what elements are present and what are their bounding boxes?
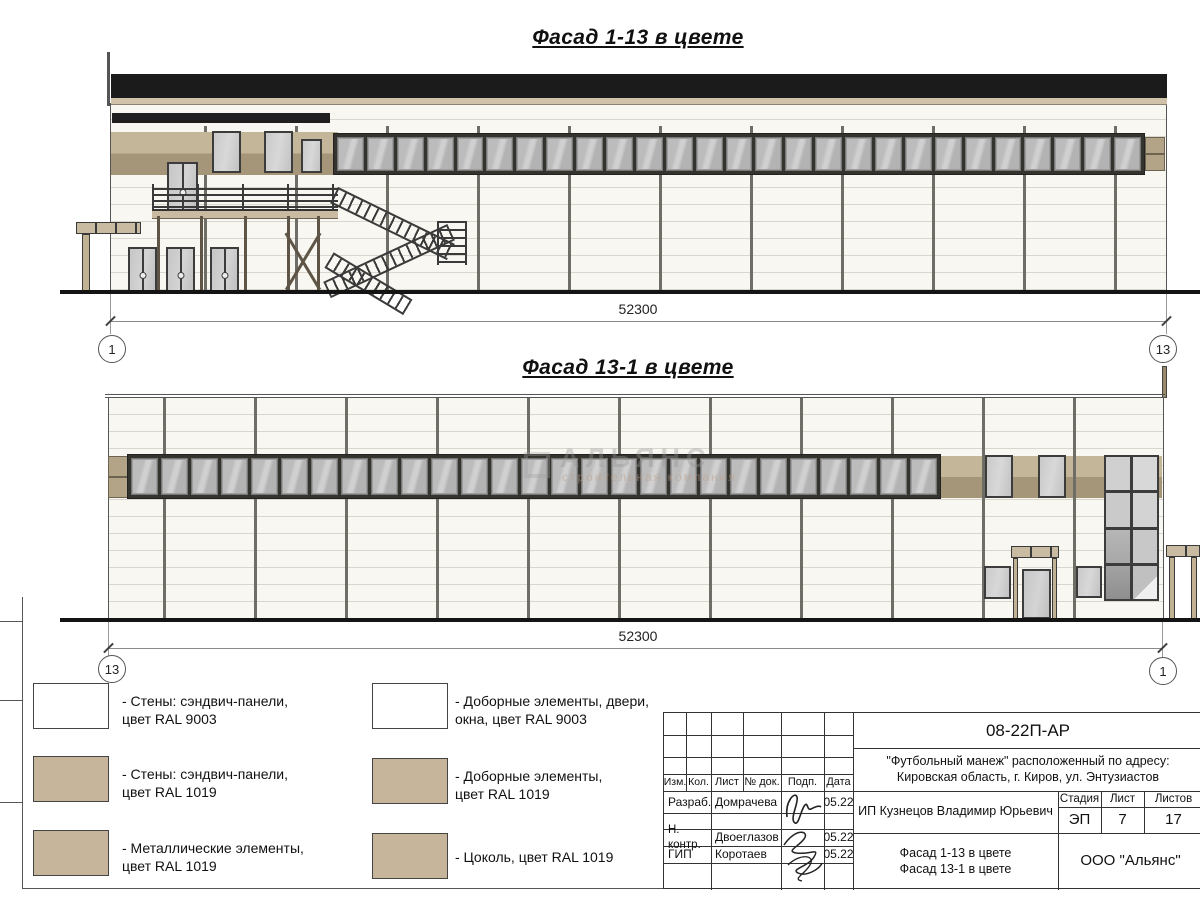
legend-label: - Стены: сэндвич-панели, цвет RAL 1019 xyxy=(122,765,288,801)
structural-grid-line xyxy=(163,398,166,620)
mast xyxy=(107,52,110,106)
tb-date: 05.22 xyxy=(824,791,853,813)
balcony-post xyxy=(200,216,203,291)
signature-nkontr-gip xyxy=(776,825,828,885)
drawing-sheet: Фасад 1-13 в цвете xyxy=(0,0,1200,900)
glazing-pane xyxy=(1133,457,1157,490)
window-pane xyxy=(337,137,364,171)
tb-name-dvoeglazov: Двоеглазов xyxy=(711,829,781,846)
window-pane xyxy=(785,137,812,171)
facade1-dim-text: 52300 xyxy=(458,301,818,317)
axis-bubble-1: 1 xyxy=(1149,657,1177,685)
tb-sheets-label: Листов xyxy=(1144,791,1200,807)
structural-grid-line xyxy=(436,398,439,620)
window-pane xyxy=(965,137,992,171)
window-pane xyxy=(491,458,518,495)
right-side-canopy-post xyxy=(1169,557,1175,620)
window-pane xyxy=(251,458,278,495)
facade2-dim-text: 52300 xyxy=(458,628,818,644)
facade2-dim-line xyxy=(108,648,1163,649)
facade2-ground-line xyxy=(60,618,1200,622)
tb-company: ООО "Альянс" xyxy=(1058,833,1200,890)
frame-tick xyxy=(0,802,22,803)
glazing-pane xyxy=(1133,530,1157,563)
tb-project-address: "Футбольный манеж" расположенный по адре… xyxy=(853,748,1200,791)
structural-grid-line xyxy=(800,398,803,620)
tb-name-domracheva: Домрачева xyxy=(711,791,781,813)
tb-col-izm: Изм. xyxy=(664,774,686,791)
window-pane xyxy=(486,137,513,171)
window-pane xyxy=(311,458,338,495)
structural-grid-line xyxy=(709,398,712,620)
window-pane xyxy=(850,458,877,495)
structural-grid-line xyxy=(527,398,530,620)
window-pane xyxy=(546,137,573,171)
window-pane xyxy=(221,458,248,495)
frame-tick xyxy=(0,621,22,622)
window-pane xyxy=(371,458,398,495)
ground-door-3 xyxy=(210,247,239,292)
window-pane xyxy=(935,137,962,171)
structural-grid-line xyxy=(891,398,894,620)
tb-col-ndok: № док. xyxy=(743,774,781,791)
legend-swatch xyxy=(372,683,448,729)
glazing-pane xyxy=(1106,493,1130,526)
facade1-dim-line xyxy=(110,321,1167,322)
frame-tick xyxy=(0,700,22,701)
tb-drawing-titles: Фасад 1-13 в цвете Фасад 13-1 в цвете xyxy=(853,833,1058,890)
window-pane xyxy=(576,137,603,171)
upper-window-2 xyxy=(264,131,293,173)
tb-col-kol: Кол. xyxy=(686,774,711,791)
window-pane xyxy=(367,137,394,171)
right-side-canopy-post xyxy=(1191,557,1197,620)
tb-client: ИП Кузнецов Владимир Юрьевич xyxy=(853,791,1058,833)
tb-stage-label: Стадия xyxy=(1058,791,1101,807)
window-pane xyxy=(726,137,753,171)
legend-label: - Цоколь, цвет RAL 1019 xyxy=(455,848,613,866)
window-pane xyxy=(760,458,787,495)
right-side-canopy xyxy=(1166,545,1200,557)
glazing-stack xyxy=(1104,455,1159,601)
window-pane xyxy=(457,137,484,171)
ground-door-2 xyxy=(166,247,195,292)
dim-leader xyxy=(110,294,111,334)
window-pane xyxy=(910,458,937,495)
window-pane xyxy=(845,137,872,171)
window-pane xyxy=(131,458,158,495)
signature-razrab xyxy=(781,789,824,827)
tb-col-list: Лист xyxy=(711,774,743,791)
facade1-dark-strip xyxy=(112,113,330,123)
entrance-door xyxy=(1022,569,1051,619)
balcony-railing xyxy=(152,184,338,209)
legend-label: - Доборные элементы, цвет RAL 1019 xyxy=(455,767,602,803)
watermark-tagline: строительная компания xyxy=(562,470,737,484)
facade1-roof-strip xyxy=(111,98,1167,105)
axis-bubble-13: 13 xyxy=(98,655,126,683)
structural-grid-line xyxy=(254,398,257,620)
window-pane xyxy=(820,458,847,495)
balcony-post xyxy=(244,216,247,291)
tb-sheet-label: Лист xyxy=(1101,791,1144,807)
facade1-tan-end-bottom xyxy=(1145,154,1165,171)
dim-leader xyxy=(1162,622,1163,662)
upper-window-3 xyxy=(301,139,322,173)
ground-window-2 xyxy=(1076,566,1102,598)
tb-stage-value: ЭП xyxy=(1058,807,1101,833)
tb-sheet-value: 7 xyxy=(1101,807,1144,833)
right-window-1 xyxy=(985,455,1013,498)
window-pane xyxy=(875,137,902,171)
axis-bubble-13: 13 xyxy=(1149,335,1177,363)
window-pane xyxy=(191,458,218,495)
facade1-window-strip xyxy=(333,133,1145,175)
window-pane xyxy=(516,137,543,171)
glazing-pane xyxy=(1133,493,1157,526)
cross-brace xyxy=(286,233,319,289)
window-pane xyxy=(461,458,488,495)
legend-label: - Доборные элементы, двери, окна, цвет R… xyxy=(455,692,649,728)
window-pane xyxy=(636,137,663,171)
stair-landing xyxy=(437,221,467,265)
window-pane xyxy=(666,137,693,171)
entrance-canopy xyxy=(1011,546,1059,558)
window-pane xyxy=(1024,137,1051,171)
legend-swatch xyxy=(372,833,448,879)
balcony-post xyxy=(157,216,160,291)
tb-date: 05.22 xyxy=(824,829,853,846)
legend-label: - Стены: сэндвич-панели, цвет RAL 9003 xyxy=(122,692,288,728)
window-pane xyxy=(281,458,308,495)
glazing-pane xyxy=(1106,457,1130,490)
right-window-2 xyxy=(1038,455,1066,498)
window-pane xyxy=(905,137,932,171)
tb-sheets-value: 17 xyxy=(1144,807,1200,833)
window-pane xyxy=(1084,137,1111,171)
legend-swatch xyxy=(372,758,448,804)
window-pane xyxy=(1054,137,1081,171)
entrance-canopy-post xyxy=(1052,558,1057,620)
facade2-tan-start-bottom xyxy=(108,477,128,498)
tb-name-korotaev: Коротаев xyxy=(711,846,781,863)
window-pane xyxy=(341,458,368,495)
window-pane xyxy=(397,137,424,171)
window-pane xyxy=(431,458,458,495)
watermark-logo xyxy=(524,452,550,478)
window-pane xyxy=(755,137,782,171)
facade2-tan-start-top xyxy=(108,456,128,477)
facade2-title: Фасад 13-1 в цвете xyxy=(408,356,848,380)
structural-grid-line xyxy=(345,398,348,620)
tb-role-razrab: Разраб. xyxy=(664,791,711,813)
glazing-pane xyxy=(1106,530,1130,563)
glazing-pane xyxy=(1133,566,1157,599)
legend-swatch xyxy=(33,830,109,876)
frame-left-line xyxy=(22,597,23,889)
ground-window-1 xyxy=(984,566,1011,599)
window-pane xyxy=(427,137,454,171)
window-pane xyxy=(995,137,1022,171)
tb-doc-number: 08-22П-АР xyxy=(853,713,1200,748)
facade1-roof-band xyxy=(111,74,1167,98)
glazing-pane xyxy=(1106,566,1130,599)
tb-col-data: Дата xyxy=(824,774,853,791)
legend-swatch xyxy=(33,683,109,729)
tb-date: 05.22 xyxy=(824,846,853,863)
structural-grid-line xyxy=(618,398,621,620)
title-block: Изм. Кол. Лист № док. Подп. Дата Разраб.… xyxy=(663,712,1200,889)
window-pane xyxy=(1114,137,1141,171)
dim-leader xyxy=(1166,294,1167,334)
window-pane xyxy=(815,137,842,171)
window-pane xyxy=(161,458,188,495)
ground-door-1 xyxy=(128,247,157,292)
window-pane xyxy=(880,458,907,495)
facade1-ground-line xyxy=(60,290,1200,294)
legend-swatch xyxy=(33,756,109,802)
window-pane xyxy=(696,137,723,171)
window-pane xyxy=(790,458,817,495)
tb-role-gip: ГИП xyxy=(664,846,711,863)
entrance-canopy-post xyxy=(1013,558,1018,620)
side-canopy-post xyxy=(82,234,90,292)
facade1-tan-end-top xyxy=(1145,137,1165,154)
window-pane xyxy=(401,458,428,495)
side-canopy xyxy=(76,222,141,234)
facade1-title: Фасад 1-13 в цвете xyxy=(418,26,858,50)
upper-window-1 xyxy=(212,131,241,173)
axis-bubble-1: 1 xyxy=(98,335,126,363)
legend-label: - Металлические элементы, цвет RAL 1019 xyxy=(122,839,304,875)
window-pane xyxy=(606,137,633,171)
tb-role-nkontr: Н. контр. xyxy=(664,829,711,846)
